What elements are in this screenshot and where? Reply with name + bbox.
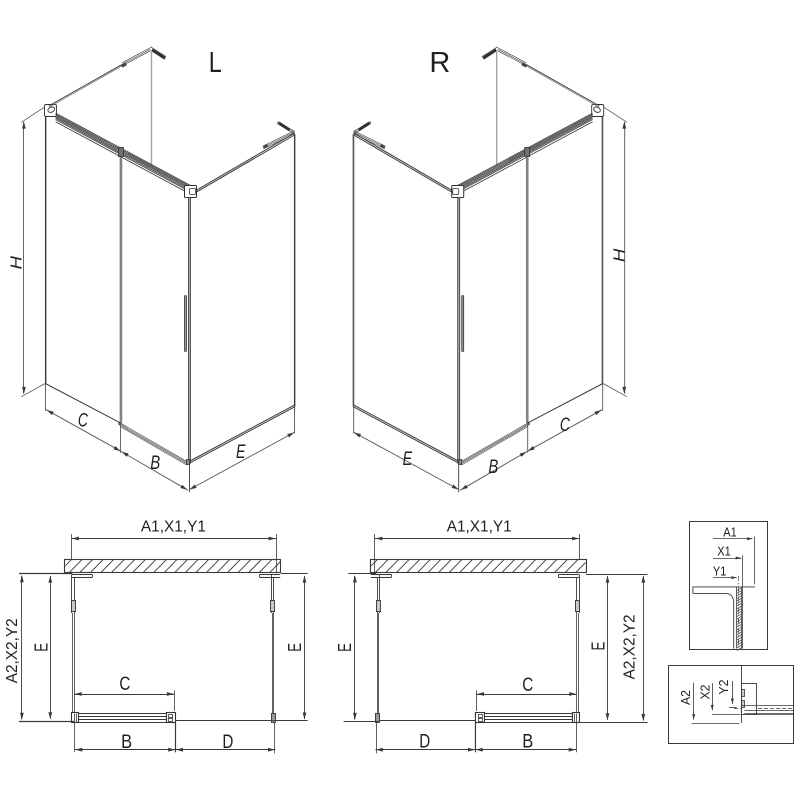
svg-text:X2: X2 (699, 684, 713, 699)
svg-text:B: B (121, 731, 132, 753)
svg-text:E: E (236, 442, 246, 463)
svg-text:E: E (403, 449, 413, 470)
svg-text:E: E (285, 643, 305, 652)
svg-text:B: B (488, 457, 498, 478)
svg-text:H: H (8, 255, 25, 269)
svg-text:E: E (32, 643, 52, 652)
svg-text:A2,X2,Y2: A2,X2,Y2 (4, 618, 21, 683)
svg-text:A1,X1,Y1: A1,X1,Y1 (447, 518, 512, 535)
svg-text:A2,X2,Y2: A2,X2,Y2 (621, 614, 638, 679)
svg-text:C: C (560, 415, 570, 436)
svg-text:B: B (150, 453, 160, 474)
svg-text:A1,X1,Y1: A1,X1,Y1 (141, 518, 206, 535)
svg-text:C: C (119, 673, 130, 695)
svg-text:E: E (588, 642, 608, 651)
svg-text:Y1: Y1 (713, 564, 727, 578)
svg-text:H: H (611, 248, 628, 262)
svg-text:E: E (335, 643, 355, 652)
svg-text:C: C (522, 674, 533, 696)
svg-text:A2: A2 (679, 690, 693, 705)
svg-text:L: L (209, 47, 222, 79)
svg-text:D: D (419, 731, 430, 753)
svg-text:C: C (78, 411, 88, 432)
svg-text:R: R (429, 47, 450, 79)
svg-text:A1: A1 (723, 525, 737, 539)
svg-text:D: D (222, 731, 233, 753)
svg-text:B: B (522, 731, 533, 753)
svg-text:X1: X1 (717, 545, 731, 559)
svg-text:Y2: Y2 (717, 679, 731, 694)
